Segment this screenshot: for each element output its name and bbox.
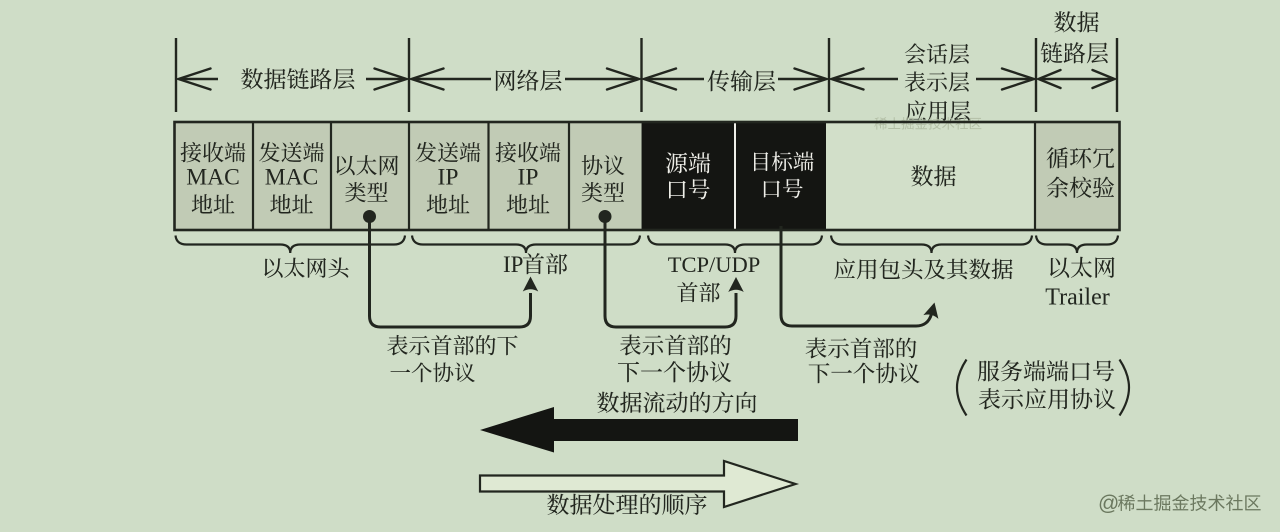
svg-text:Trailer: Trailer — [1045, 285, 1109, 311]
svg-text:TCP/UDP: TCP/UDP — [668, 252, 761, 277]
svg-text:MAC: MAC — [265, 165, 319, 191]
svg-text:IP: IP — [503, 252, 523, 277]
svg-text:@: @ — [1098, 492, 1119, 515]
svg-text:MAC: MAC — [186, 165, 240, 191]
svg-text:IP: IP — [518, 165, 539, 191]
svg-text:IP: IP — [438, 165, 459, 191]
